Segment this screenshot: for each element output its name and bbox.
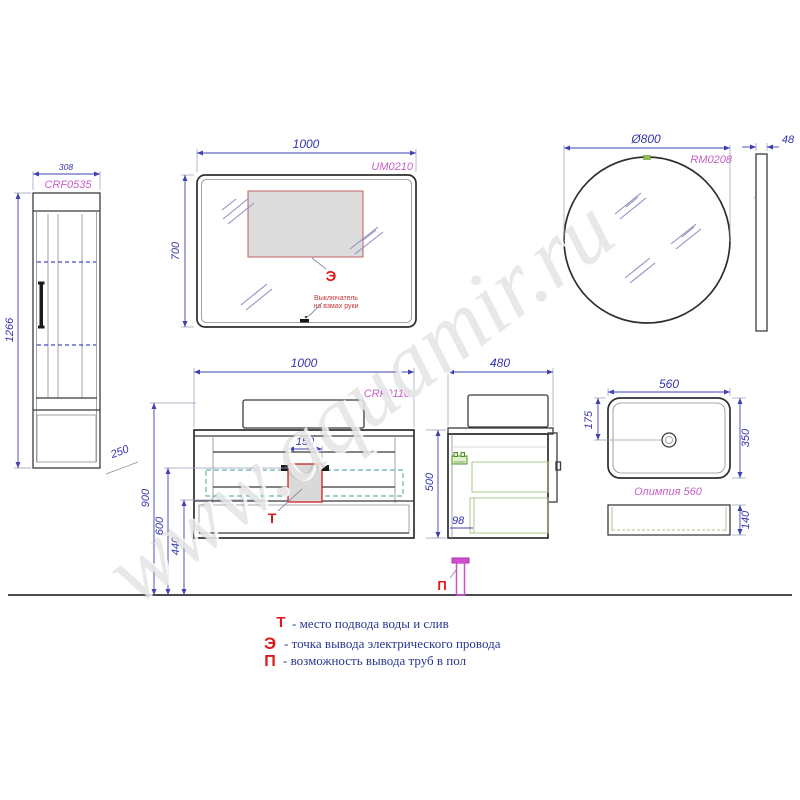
washbasin-drain-label: 175	[583, 410, 595, 429]
door-handle-cap-top	[38, 282, 45, 285]
washbasin-height-label: 140	[740, 510, 752, 529]
basin-inner-rim	[613, 403, 725, 473]
floor-pipe-marker: П	[437, 558, 469, 595]
washbasin-name: Олимпия 560	[634, 486, 703, 498]
pipe-body	[457, 563, 465, 595]
depth-leader	[106, 462, 138, 474]
round-mirror-outline	[564, 157, 730, 323]
drawing-canvas: 308 CRF0535 1266 250 Э Выключатель на вз…	[0, 0, 800, 800]
vanity-depth-label: 480	[490, 356, 510, 370]
vanity-code: CRF0110	[364, 388, 411, 400]
tall-cabinet-view: 308 CRF0535 1266 250	[4, 162, 138, 474]
round-mirror-diameter-label: Ø800	[630, 132, 661, 146]
basin-side	[468, 395, 548, 427]
marker-e-leader	[312, 258, 326, 269]
legend-text-p: - возможность вывода труб в пол	[283, 653, 467, 668]
marker-e: Э	[326, 268, 337, 285]
vanity-front-view: 150 Т 1000 CRF0110 900 600 440	[140, 356, 414, 595]
vanity-h600-label: 600	[154, 516, 166, 535]
marker-t: Т	[268, 510, 277, 526]
washbasin-side-view: 140	[608, 505, 752, 535]
flat-mirror-code: UM0210	[371, 161, 413, 173]
legend-text-t: - место подвода воды и слив	[292, 616, 449, 631]
countertop-side	[448, 428, 553, 434]
round-mirror-depth-label: 48	[782, 134, 795, 146]
mirror-sensor-zone	[248, 191, 363, 257]
door-handle	[40, 283, 44, 327]
top-mark-green	[644, 156, 651, 160]
round-mirror-shine-hatches	[615, 193, 701, 283]
legend-marker-e: Э	[264, 634, 276, 653]
vanity-gap-label: 98	[452, 515, 465, 527]
drawer-outline-upper	[472, 462, 548, 492]
washbasin-top-view: 560 350 175 Олимпия 560	[583, 377, 752, 498]
legend-marker-t: Т	[276, 614, 285, 631]
round-mirror-side-panel	[756, 154, 767, 331]
vanity-width-label: 1000	[291, 356, 318, 370]
switch-icon	[300, 319, 309, 323]
drain-inner	[666, 437, 673, 444]
flat-mirror-height-label: 700	[170, 241, 182, 260]
door-handle-cap-bottom	[38, 326, 45, 329]
technical-drawing-sheet: 308 CRF0535 1266 250 Э Выключатель на вз…	[0, 0, 800, 800]
legend-text-e: - точка вывода электрического провода	[284, 636, 501, 651]
flat-mirror-width-label: 1000	[293, 137, 320, 151]
tall-cabinet-code: CRF0535	[44, 179, 92, 191]
basin-outline	[608, 398, 730, 478]
tall-cabinet-depth-label: 250	[108, 443, 131, 461]
tall-cabinet-height-label: 1266	[4, 317, 16, 342]
drain-outer	[662, 433, 676, 447]
vanity-cutout-label: 150	[296, 436, 315, 448]
vanity-height-label: 500	[424, 472, 436, 491]
vanity-basin-front	[243, 400, 364, 428]
vanity-h900-label: 900	[140, 488, 152, 507]
vanity-h440-label: 440	[170, 536, 182, 555]
legend: Т - место подвода воды и слив Э - точка …	[264, 614, 501, 670]
legend-marker-p: П	[264, 653, 276, 670]
switch-dot-icon	[305, 316, 308, 319]
water-supply-box	[288, 464, 322, 502]
tall-cabinet-open-shelf	[37, 415, 96, 462]
round-mirror-code: RM0208	[690, 154, 732, 166]
side-panel-nub	[755, 197, 757, 199]
washbasin-depth-label: 350	[740, 428, 752, 447]
switch-note-line1: Выключатель	[314, 295, 358, 302]
wall-bracket-icon	[452, 453, 467, 465]
marker-p: П	[437, 578, 446, 593]
washbasin-width-label: 560	[659, 377, 679, 391]
tall-cabinet-width-label: 308	[59, 162, 73, 172]
tall-cabinet-outline	[33, 193, 100, 468]
flat-mirror-view: Э Выключатель на взмах руки 1000 UM0210 …	[170, 137, 416, 327]
switch-note-line2: на взмах руки	[314, 303, 359, 310]
round-mirror-view: Ø800 RM0208 48	[564, 132, 795, 331]
clip-right	[322, 465, 329, 471]
drawer-outline-lower	[470, 498, 548, 533]
vanity-side-view: 480 500 98	[424, 356, 561, 538]
